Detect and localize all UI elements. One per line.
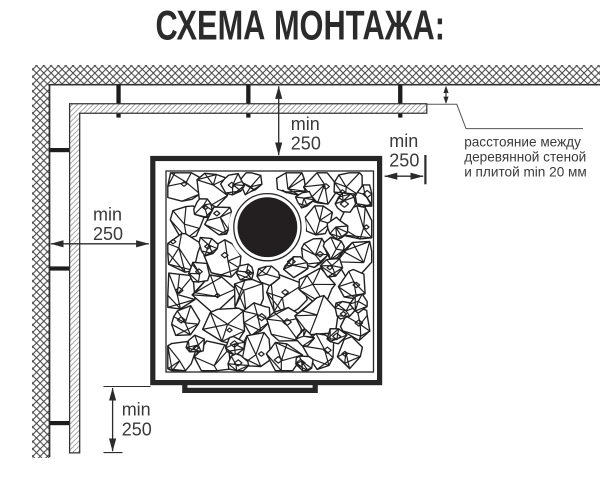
svg-text:min: min (122, 400, 151, 420)
svg-text:min: min (291, 114, 320, 134)
svg-text:деревянной стеной: деревянной стеной (464, 150, 586, 165)
svg-text:min: min (93, 205, 122, 225)
svg-text:250: 250 (389, 151, 419, 171)
svg-text:250: 250 (291, 133, 321, 153)
svg-text:min: min (389, 131, 418, 151)
svg-text:и плитой min 20 мм: и плитой min 20 мм (464, 165, 587, 180)
svg-text:расстояние между: расстояние между (464, 134, 581, 149)
svg-text:250: 250 (93, 224, 123, 244)
svg-text:СХЕМА МОНТАЖА:: СХЕМА МОНТАЖА: (156, 3, 446, 49)
svg-text:250: 250 (122, 419, 152, 439)
